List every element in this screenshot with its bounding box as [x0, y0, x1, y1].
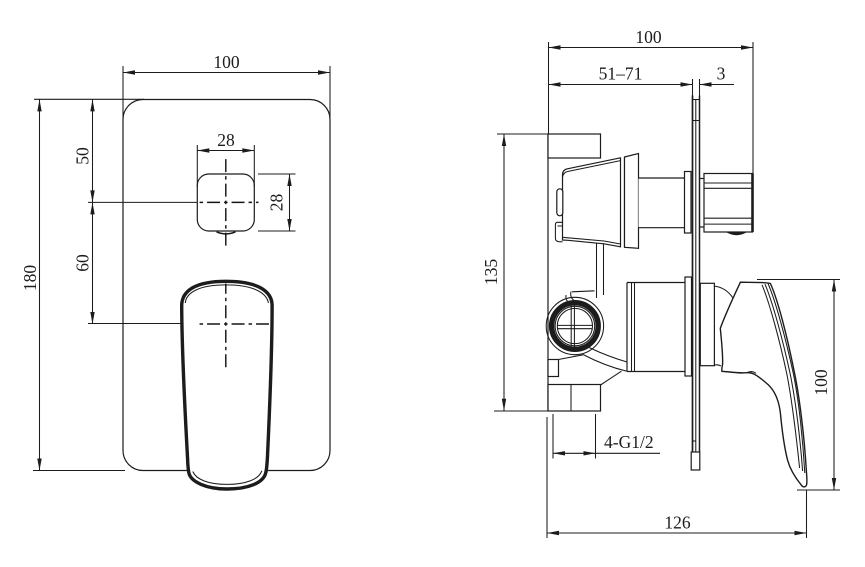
svg-text:126: 126 — [664, 513, 691, 533]
svg-text:50: 50 — [73, 147, 93, 165]
svg-text:4-G1/2: 4-G1/2 — [604, 432, 654, 452]
svg-text:28: 28 — [217, 130, 235, 150]
svg-text:3: 3 — [717, 64, 726, 84]
svg-text:100: 100 — [635, 27, 662, 47]
svg-text:51–71: 51–71 — [599, 64, 643, 84]
svg-text:100: 100 — [213, 52, 240, 72]
svg-text:135: 135 — [481, 259, 501, 286]
svg-text:60: 60 — [73, 254, 93, 272]
svg-text:180: 180 — [20, 265, 40, 292]
svg-text:28: 28 — [267, 194, 287, 212]
svg-text:100: 100 — [811, 369, 831, 396]
